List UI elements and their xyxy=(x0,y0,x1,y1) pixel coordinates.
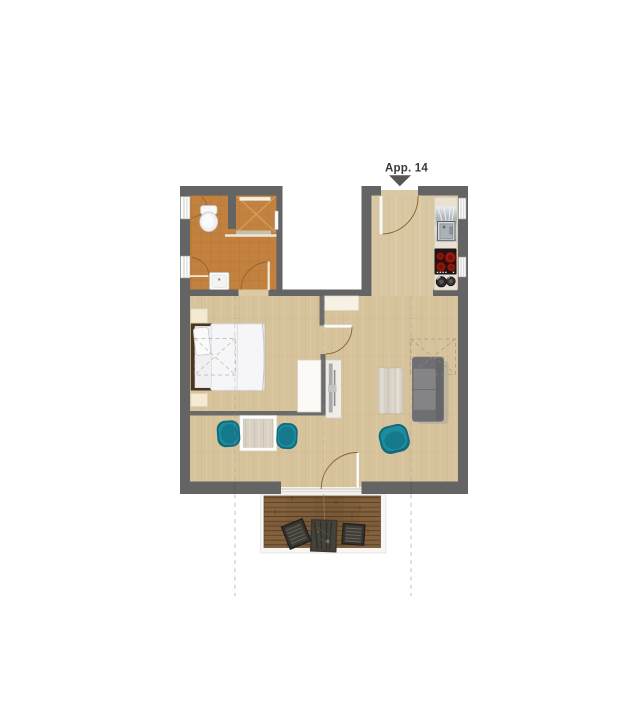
svg-text:App. 14: App. 14 xyxy=(385,163,428,175)
